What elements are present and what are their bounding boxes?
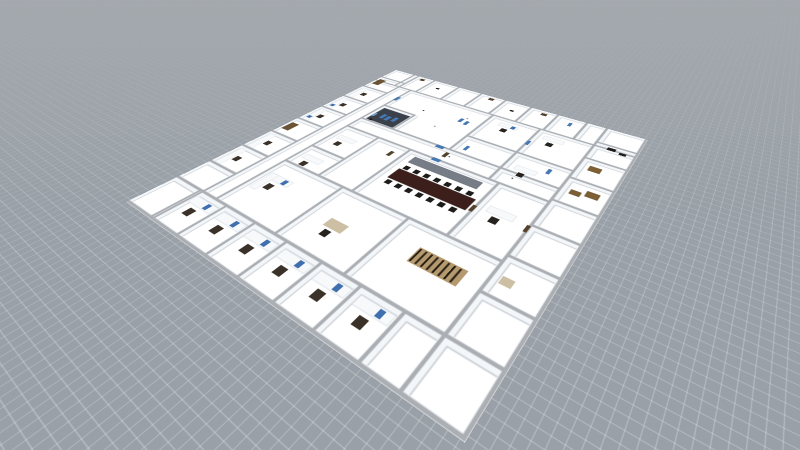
3d-scene-viewport[interactable] [0, 0, 800, 450]
ground-grid-plane [0, 0, 800, 38]
